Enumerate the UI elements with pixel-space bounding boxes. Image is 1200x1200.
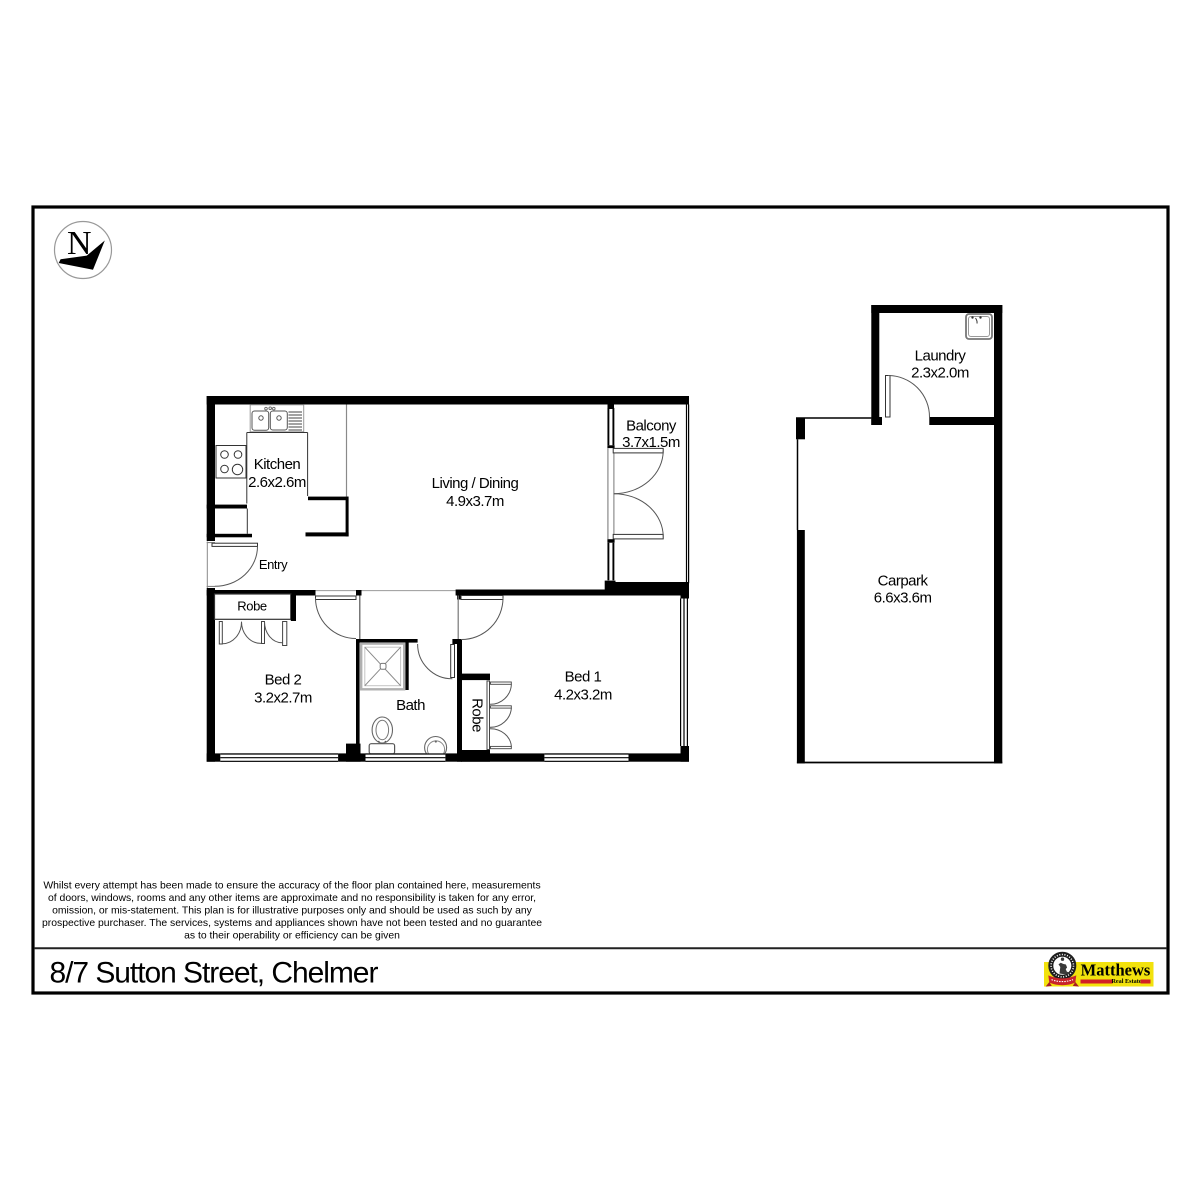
- svg-text:Matthews: Matthews: [1081, 961, 1151, 980]
- svg-text:Living / Dining: Living / Dining: [432, 475, 519, 492]
- svg-text:3.7x1.5m: 3.7x1.5m: [622, 434, 680, 451]
- svg-text:prospective purchaser. The ser: prospective purchaser. The services, sys…: [42, 918, 542, 929]
- svg-text:Kitchen: Kitchen: [254, 456, 301, 473]
- svg-text:4.9x3.7m: 4.9x3.7m: [446, 493, 504, 510]
- svg-text:of doors, windows, rooms and a: of doors, windows, rooms and any other i…: [48, 893, 536, 904]
- svg-text:as to their operability or eff: as to their operability or efficiency ca…: [184, 931, 400, 942]
- svg-text:Robe: Robe: [237, 599, 267, 614]
- svg-text:Entry: Entry: [259, 557, 288, 572]
- svg-text:Balcony: Balcony: [626, 418, 677, 435]
- svg-text:2.6x2.6m: 2.6x2.6m: [248, 474, 306, 491]
- svg-text:Laundry: Laundry: [915, 348, 967, 365]
- svg-text:Whilst every attempt has been: Whilst every attempt has been made to en…: [43, 881, 540, 892]
- svg-text:Carpark: Carpark: [878, 573, 929, 590]
- svg-text:8/7 Sutton Street, Chelmer: 8/7 Sutton Street, Chelmer: [50, 956, 379, 989]
- svg-text:2.3x2.0m: 2.3x2.0m: [911, 365, 969, 382]
- svg-text:6.6x3.6m: 6.6x3.6m: [874, 590, 932, 607]
- svg-text:Robe: Robe: [469, 698, 486, 732]
- svg-text:Bath: Bath: [396, 697, 425, 714]
- svg-text:omission, or mis-statement. Th: omission, or mis-statement. This plan is…: [52, 906, 533, 917]
- svg-text:3.2x2.7m: 3.2x2.7m: [254, 690, 312, 707]
- svg-text:4.2x3.2m: 4.2x3.2m: [554, 687, 612, 704]
- svg-text:Bed 2: Bed 2: [265, 672, 302, 689]
- svg-text:Real Estate: Real Estate: [1111, 978, 1141, 985]
- svg-text:Bed 1: Bed 1: [565, 669, 602, 686]
